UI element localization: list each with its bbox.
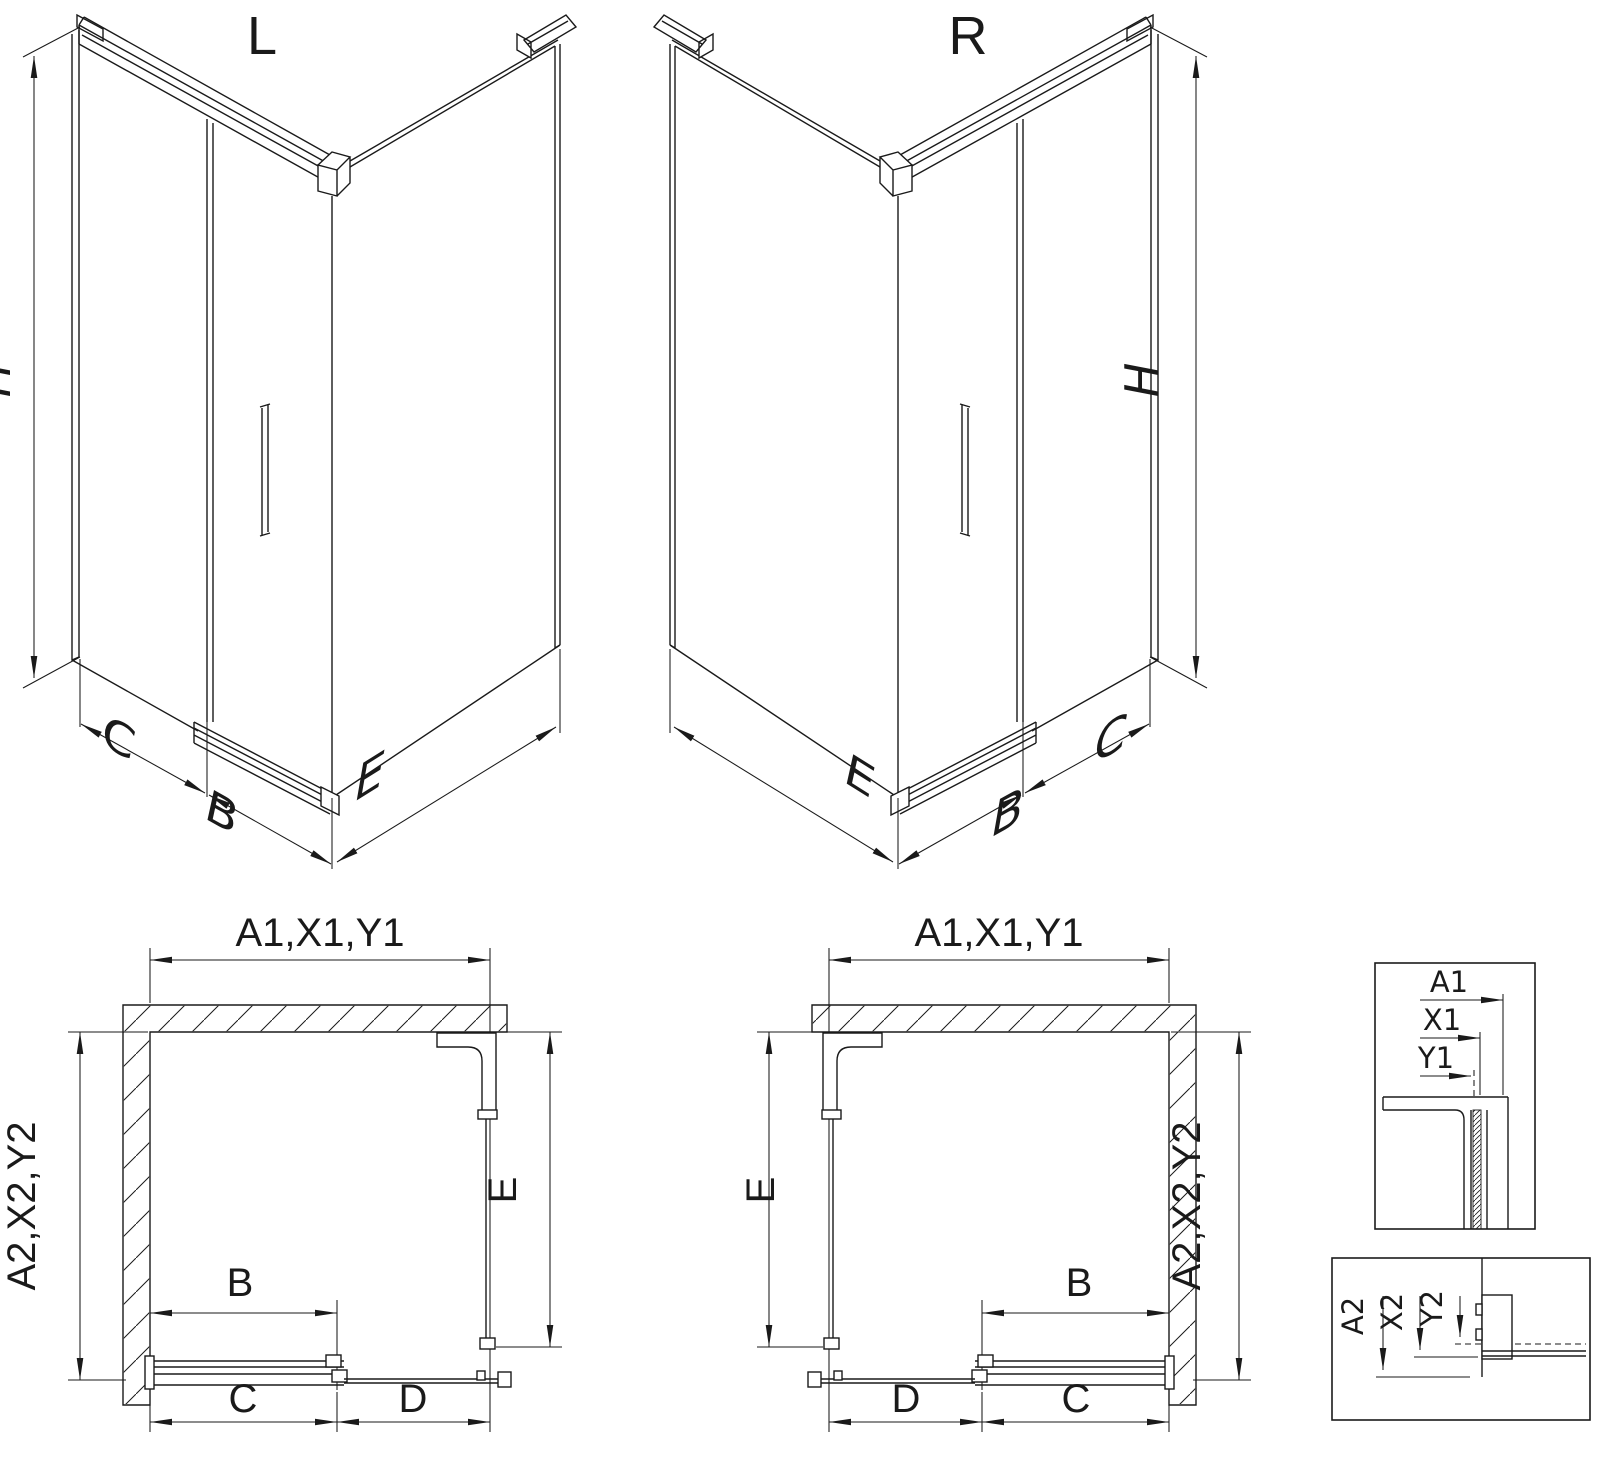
dim-label-d: D (892, 1377, 921, 1421)
profile-notch-2 (1476, 1329, 1482, 1340)
dim-label-h: H (1115, 363, 1169, 398)
detail-section-bottom: A2 X2 Y2 (1332, 1258, 1590, 1420)
variant-label-right: R (949, 6, 988, 66)
dim-label-y1: Y1 (1417, 1041, 1454, 1075)
sill-profile-block (1482, 1295, 1512, 1359)
dim-label-b: B (992, 776, 1024, 847)
technical-drawing-page: L H C B E R H E B C A1,X1,Y1 A2,X2,Y2 E … (0, 0, 1600, 1458)
dim-label-a1x1y1: A1,X1,Y1 (914, 911, 1083, 955)
profile-notch-1 (1476, 1304, 1482, 1315)
plan-view-left: A1,X1,Y1 A2,X2,Y2 E B C D (0, 911, 562, 1432)
dim-label-x2: X2 (1375, 1293, 1409, 1331)
dim-label-x1: X1 (1423, 1003, 1461, 1037)
dim-label-e: E (355, 740, 384, 812)
wall-hatch-top (813, 1006, 1195, 1031)
wall-hatch-top (124, 1006, 506, 1031)
dim-label-c: C (1095, 702, 1128, 774)
dim-label-d: D (399, 1377, 428, 1421)
profile-section (1383, 1097, 1508, 1229)
dim-label-b: B (206, 776, 238, 847)
dim-label-a1x1y1: A1,X1,Y1 (235, 911, 404, 955)
variant-label-left: L (247, 6, 277, 66)
iso-view-left: L H C B E (0, 6, 576, 869)
dim-label-e: E (739, 1177, 783, 1204)
dim-label-a2x2y2: A2,X2,Y2 (1165, 1121, 1209, 1290)
dim-label-c: C (1062, 1377, 1091, 1421)
shower-enclosure-diagram: L H C B E R H E B C A1,X1,Y1 A2,X2,Y2 E … (0, 0, 1600, 1458)
dim-label-a2x2y2: A2,X2,Y2 (0, 1121, 44, 1290)
glass-section (1473, 1110, 1481, 1229)
dim-label-a1: A1 (1430, 965, 1468, 999)
detail-frame (1332, 1258, 1590, 1420)
dim-label-c: C (229, 1377, 258, 1421)
iso-view-right: R H E B C (654, 6, 1207, 869)
dim-label-h: H (0, 363, 21, 398)
detail-section-top: A1 X1 Y1 (1375, 963, 1535, 1229)
dim-label-b: B (1066, 1261, 1093, 1305)
dim-label-c: C (103, 702, 136, 774)
dim-label-e: E (481, 1177, 525, 1204)
wall-hatch-left (124, 1032, 149, 1404)
dim-label-e: E (845, 740, 874, 812)
plan-view-right: A1,X1,Y1 A2,X2,Y2 E B D C (739, 911, 1251, 1432)
dim-label-a2: A2 (1336, 1297, 1370, 1335)
dim-label-b: B (227, 1261, 254, 1305)
